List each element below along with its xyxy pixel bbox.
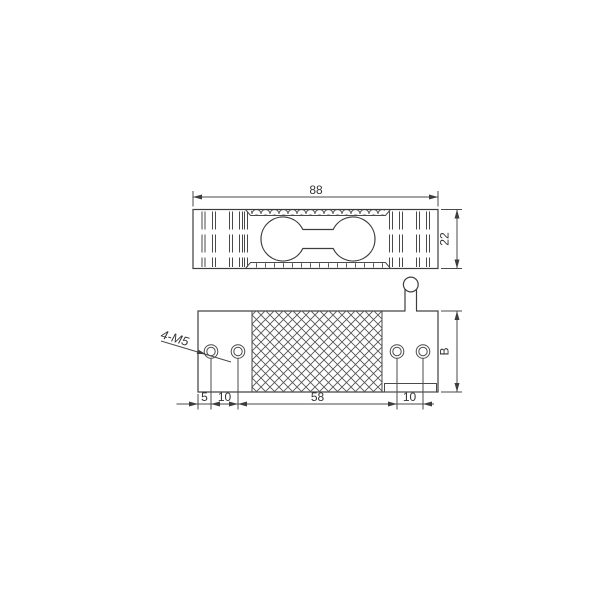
dim-88-label: 88 [309, 183, 323, 197]
dim-5-label: 5 [201, 390, 208, 404]
dim-B-arrow-top [455, 311, 460, 320]
plan-view: 4-M5 5 10 58 10 B [159, 277, 462, 409]
dim-side-height: 22 [438, 210, 463, 269]
dim-B-arrow-bottom [455, 383, 460, 392]
knurled-area [252, 311, 382, 392]
technical-drawing-canvas: 88 22 [0, 0, 600, 600]
dim-10-left-label: 10 [218, 390, 232, 404]
dim-B-label: B [438, 347, 452, 355]
dim-88-arrow-left [193, 195, 202, 200]
cable-pin-gap [406, 310, 417, 313]
hole-2-inner [234, 347, 242, 355]
dim-22-arrow-top [455, 210, 460, 219]
cable-pin [403, 277, 418, 312]
hole-4-inner [419, 347, 427, 355]
dim-5-arrow [189, 402, 198, 407]
dim-58-arrow-left [238, 402, 247, 407]
cable-pin-cap [403, 277, 418, 292]
dim-58-arrow-right [388, 402, 397, 407]
side-view: 88 22 [193, 183, 462, 269]
dim-overall-width: 88 [193, 183, 438, 207]
hole-1-inner [207, 347, 215, 355]
top-serration-scallops [251, 210, 385, 216]
dim-10-right-label: 10 [403, 390, 417, 404]
dim-22-arrow-bottom [455, 260, 460, 269]
dim-88-arrow-right [429, 195, 438, 200]
dim-10r-arrow-right [423, 402, 432, 407]
dim-22-label: 22 [438, 232, 452, 246]
load-cell-drawing: 88 22 [0, 0, 600, 600]
hole-3-inner [393, 347, 401, 355]
dim-58-label: 58 [311, 390, 325, 404]
thread-label: 4-M5 [159, 327, 190, 349]
dim-body-depth: B [438, 311, 463, 392]
bottom-serration-ticks [251, 263, 385, 267]
